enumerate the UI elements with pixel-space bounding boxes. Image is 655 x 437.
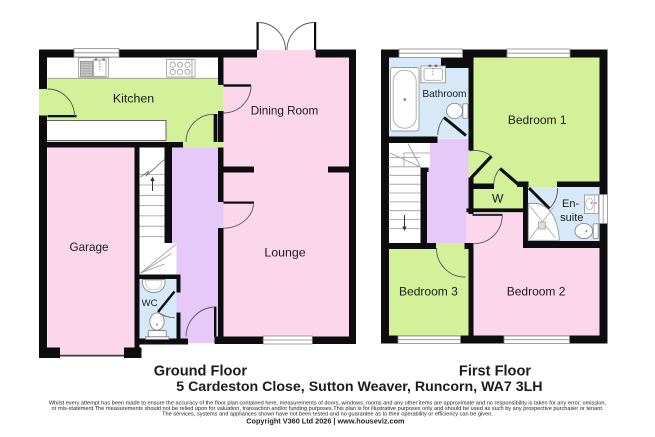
svg-text:Copyright V360 Ltd 2026 | www.: Copyright V360 Ltd 2026 | www.houseviz.c… (246, 417, 405, 426)
svg-text:Dining Room: Dining Room (251, 105, 319, 118)
svg-text:First Floor: First Floor (459, 363, 531, 379)
svg-text:suite: suite (560, 212, 583, 224)
svg-text:En-: En- (562, 198, 579, 210)
svg-text:Bedroom 2: Bedroom 2 (507, 284, 566, 298)
svg-text:5 Cardeston Close, Sutton Weav: 5 Cardeston Close, Sutton Weaver, Runcor… (176, 379, 542, 395)
svg-text:Garage: Garage (70, 241, 109, 254)
svg-text:Bathroom: Bathroom (422, 89, 466, 100)
svg-text:WC: WC (142, 298, 158, 309)
svg-text:Bedroom 1: Bedroom 1 (508, 113, 567, 127)
svg-text:Bedroom 3: Bedroom 3 (399, 284, 458, 298)
svg-text:Lounge: Lounge (264, 246, 305, 260)
svg-text:W: W (492, 192, 504, 206)
svg-text:Kitchen: Kitchen (113, 92, 154, 106)
svg-text:Ground Floor: Ground Floor (154, 363, 248, 379)
